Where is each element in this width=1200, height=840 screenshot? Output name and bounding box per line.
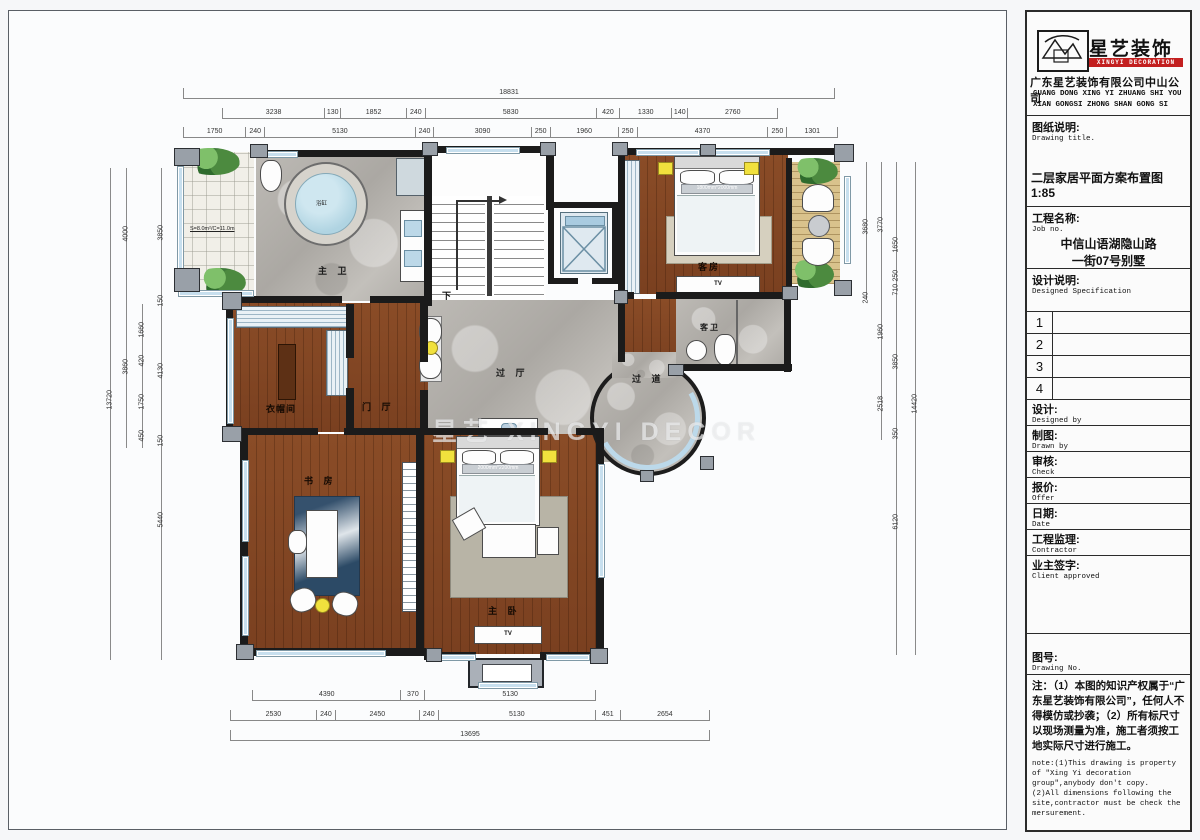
spec-row: 3 (1027, 356, 1190, 378)
wall (784, 292, 791, 372)
dim-value: 1330 (619, 108, 671, 118)
window (242, 556, 249, 636)
tv-cabinet: TV (676, 276, 760, 293)
window (446, 147, 520, 154)
dim-value: 420 (596, 108, 620, 118)
stair-arrow-line (456, 200, 500, 202)
stair-arrow-head (499, 196, 507, 204)
column (834, 144, 854, 162)
dim-value: 140 (671, 108, 687, 118)
spec-row: 4 (1027, 378, 1190, 400)
wall (232, 296, 342, 303)
closet-island (278, 344, 296, 400)
dim-value: 3090 (433, 127, 530, 137)
column (834, 280, 852, 296)
title-block: 星艺装饰 XINGYI DECORATION 广东星艺装饰有限公司中山公司 GU… (1025, 10, 1192, 832)
field-label-en: Client approved (1027, 573, 1190, 581)
dim-value: 240 (316, 710, 335, 720)
spec-rows: 1234 (1027, 312, 1190, 400)
dim-value: 1852 (340, 108, 406, 118)
sink (404, 250, 422, 267)
elevator-car (560, 212, 608, 274)
column (422, 142, 438, 156)
stair-stringer (485, 196, 494, 296)
dim-value: 13695 (230, 730, 710, 740)
field-label-cn: 日期: (1027, 504, 1190, 521)
room-label-guest-room: 客房 (698, 260, 720, 273)
column (174, 268, 200, 292)
spec-label-cn: 设计说明: (1027, 269, 1190, 288)
spec-row-number: 1 (1027, 312, 1053, 333)
job-address-2: 一街07号别墅 (1027, 252, 1190, 269)
dim-value: 3850 (893, 350, 900, 370)
dim-value: 240 (406, 108, 425, 118)
window (256, 650, 386, 657)
dim-value: 1301 (786, 127, 838, 137)
job-address-1: 中信山语湖隐山路 (1027, 235, 1190, 252)
dim-value: 1960 (550, 127, 618, 137)
dim-value: 3680 (863, 215, 870, 235)
dim-value: 2518 (878, 392, 885, 412)
sheet-title: 二层家居平面方案布置图 1:85 (1027, 143, 1190, 200)
window (844, 176, 851, 264)
dim-value: 240 (245, 127, 264, 137)
column (782, 286, 798, 300)
field-label-en: Check (1027, 469, 1190, 477)
dim-chain-bottom-2: 2530240245024051304512654 (230, 710, 710, 721)
wall (424, 428, 548, 435)
dim-value: 1960 (878, 320, 885, 340)
tv-label: TV (677, 277, 759, 291)
dim-value: 710 (893, 276, 900, 296)
field-label-en: Drawn by (1027, 443, 1190, 451)
field-row: 业主签字:Client approved (1027, 556, 1190, 634)
field-label-cn: 审核: (1027, 452, 1190, 469)
drawing-desc-cn: 图纸说明: (1027, 116, 1190, 135)
field-row: 报价:Offer (1027, 478, 1190, 504)
dim-chain-top-2: 32381301852240583042013301402760 (222, 108, 778, 119)
dim-value: 3850 (158, 221, 165, 241)
dim-value: 240 (419, 710, 438, 720)
elevator-x-icon (561, 225, 607, 273)
wall (786, 158, 792, 290)
dim-value: 1660 (139, 318, 146, 338)
logo-band: XINGYI DECORATION (1089, 58, 1183, 67)
balcony-area-label: S=8.0m²/C=11.0m (190, 226, 235, 232)
wall (592, 278, 618, 284)
dim-value: 6120 (893, 510, 900, 530)
dim-chain-bottom-overall: 13695 (230, 730, 710, 741)
plant (792, 158, 838, 184)
window (478, 682, 538, 689)
dim-value: 1750 (183, 127, 245, 137)
stair-down-label: 下 (442, 289, 451, 302)
column (614, 290, 628, 304)
window (636, 149, 700, 156)
column (590, 648, 608, 664)
spec-label-en: Designed Specification (1027, 288, 1190, 296)
column (426, 648, 442, 662)
nightstand-lamp (542, 450, 557, 463)
bathtub-label: 浴缸 (316, 199, 327, 207)
field-row: 设计:Designed by (1027, 400, 1190, 426)
room-label-corridor: 过 道 (632, 372, 665, 385)
floor-plan: 下 浴缸 2000mm*2200mm (0, 0, 1005, 840)
wardrobe (236, 306, 350, 328)
side-table (315, 598, 330, 613)
window (546, 654, 590, 661)
column (700, 456, 714, 470)
balcony-chair (802, 238, 834, 266)
spec-row-number: 4 (1027, 378, 1053, 399)
shower-partition (736, 300, 738, 364)
dim-value: 2654 (620, 710, 710, 720)
column (612, 142, 628, 156)
logo-bird-icon (1039, 32, 1083, 66)
dim-line (126, 168, 127, 448)
dim-line (110, 168, 111, 660)
drawing-desc-en: Drawing title. (1027, 135, 1190, 143)
field-label-cn: 设计: (1027, 400, 1190, 417)
column (540, 142, 556, 156)
dim-value: 3238 (222, 108, 324, 118)
company-logo-icon (1037, 30, 1089, 72)
foyer-floor (352, 303, 428, 434)
notes-section: 注：（1）本图的知识产权属于“广东星艺装饰有限公司”，任何人不得模仿或抄袭；（2… (1027, 675, 1190, 828)
column (700, 144, 716, 156)
drawing-sheet: 下 浴缸 2000mm*2200mm (0, 0, 1200, 840)
desk (306, 510, 338, 578)
dim-value: 240 (415, 127, 434, 137)
wall (656, 292, 792, 299)
column (222, 426, 242, 442)
field-label-cn: 报价: (1027, 478, 1190, 495)
dim-value: 250 (767, 127, 786, 137)
wall (618, 155, 625, 301)
field-row: 审核:Check (1027, 452, 1190, 478)
dim-value: 5830 (425, 108, 596, 118)
wall (346, 304, 354, 358)
dim-value: 350 (893, 420, 900, 440)
tv-cabinet: TV (474, 626, 542, 644)
ottoman (537, 527, 559, 555)
room-label-master-bath: 主 卫 (318, 264, 351, 277)
room-label-hall: 过 厅 (496, 366, 529, 379)
wardrobe (326, 330, 348, 396)
duvet (677, 195, 755, 252)
sofa (482, 524, 536, 558)
wall (416, 434, 424, 656)
dim-value: 2450 (335, 710, 419, 720)
nightstand-lamp (744, 162, 759, 175)
sink (686, 340, 707, 361)
dim-value: 250 (531, 127, 550, 137)
dim-line (161, 168, 162, 660)
dim-value: 130 (324, 108, 340, 118)
field-label-cn: 制图: (1027, 426, 1190, 443)
column (640, 470, 654, 482)
field-row: 日期:Date (1027, 504, 1190, 530)
pillow (462, 450, 496, 465)
wall (548, 278, 578, 284)
room-label-study: 书 房 (304, 474, 337, 487)
field-row: 制图:Drawn by (1027, 426, 1190, 452)
job-label-cn: 工程名称: (1027, 207, 1190, 226)
dim-value: 14420 (912, 394, 919, 414)
pillow (680, 170, 715, 185)
dim-value: 250 (618, 127, 637, 137)
dim-value: 18831 (183, 88, 835, 98)
dim-value: 370 (400, 690, 424, 700)
window (242, 460, 249, 542)
dim-value: 1650 (893, 233, 900, 253)
nightstand-lamp (658, 162, 673, 175)
dim-value: 4390 (252, 690, 400, 700)
bed-size-tag: 2000mm*2200mm (462, 464, 534, 474)
spec-section: 设计说明: Designed Specification (1027, 269, 1190, 312)
company-name-en-2: XIAN GONGSI ZHONG SHAN GONG SI (1028, 101, 1173, 109)
window (598, 464, 605, 578)
shower (396, 158, 426, 196)
dim-value: 2760 (687, 108, 778, 118)
dim-value: 5440 (158, 508, 165, 528)
column (222, 292, 242, 310)
field-label-en: Date (1027, 521, 1190, 529)
drawing-title-section: 图纸说明: Drawing title. 二层家居平面方案布置图 1:85 (1027, 116, 1190, 207)
signature-fields: 设计:Designed by制图:Drawn by审核:Check报价:Offe… (1027, 400, 1190, 634)
dim-value: 150 (158, 427, 165, 447)
wall (548, 202, 554, 284)
desk-chair (288, 530, 307, 554)
dim-value: 5130 (438, 710, 595, 720)
dim-value: 4000 (123, 222, 130, 242)
dim-value: 420 (139, 347, 146, 367)
field-label-cn: 工程监理: (1027, 530, 1190, 547)
dim-value: 4370 (637, 127, 768, 137)
room-label-closet: 衣帽间 (266, 402, 296, 415)
room-label-guest-bath: 客卫 (700, 322, 720, 333)
column (174, 148, 200, 166)
dim-value: 5130 (424, 690, 596, 700)
balcony-table (808, 215, 830, 237)
tv-label: TV (475, 627, 541, 642)
column (250, 144, 268, 158)
field-label-cn: 业主签字: (1027, 556, 1190, 573)
dim-value: 451 (595, 710, 620, 720)
bay-window-inner (482, 664, 532, 682)
dim-value: 2530 (230, 710, 316, 720)
window (227, 318, 234, 424)
company-name-en-1: GUANG DONG XING YI ZHUANG SHI YOU (1028, 90, 1187, 98)
spec-row: 2 (1027, 334, 1190, 356)
dim-value: 5130 (264, 127, 414, 137)
column (668, 364, 684, 376)
job-label-en: Job no. (1027, 226, 1190, 234)
note-en-1: note:(1)This drawing is property of "Xin… (1027, 754, 1190, 789)
drawing-no-en: Drawing No. (1027, 665, 1190, 673)
drawing-no-section: 图号: Drawing No. (1027, 648, 1190, 675)
drawing-no-cn: 图号: (1027, 648, 1190, 665)
dim-value: 13720 (107, 390, 114, 410)
dim-value: 3770 (878, 213, 885, 233)
dim-value: 4130 (158, 359, 165, 379)
balcony-chair (802, 184, 834, 212)
spec-row-number: 2 (1027, 334, 1053, 355)
dim-value: 150 (158, 287, 165, 307)
note-en-2: (2)All dimensions following the site,con… (1027, 789, 1190, 819)
wall (420, 300, 428, 362)
spec-row: 1 (1027, 312, 1190, 334)
dim-value: 450 (139, 422, 146, 442)
nightstand-lamp (440, 450, 455, 463)
dim-value: 1750 (139, 390, 146, 410)
stair-arrow-line (456, 200, 458, 290)
wall (548, 202, 618, 208)
dim-chain-top-3: 175024051302403090250196025043702501301 (183, 127, 838, 138)
pillow (500, 450, 534, 465)
toilet (714, 334, 736, 366)
wall (676, 364, 792, 371)
sink (404, 220, 422, 237)
room-label-foyer: 门 厅 (362, 400, 395, 413)
field-label-en: Offer (1027, 495, 1190, 503)
dim-chain-top-overall: 18831 (183, 88, 835, 99)
logo-wordmark: 星艺装饰 (1089, 34, 1173, 61)
dim-chain-bottom-1: 43903705130 (252, 690, 596, 701)
title-block-header: 星艺装饰 XINGYI DECORATION 广东星艺装饰有限公司中山公司 GU… (1027, 12, 1190, 116)
window (177, 166, 184, 270)
note-cn: 注：（1）本图的知识产权属于“广东星艺装饰有限公司”，任何人不得模仿或抄袭；（2… (1027, 675, 1190, 754)
toilet (260, 160, 282, 192)
bed-size-tag: 1800mm*2000mm (681, 184, 753, 194)
column (236, 644, 254, 660)
dim-value: 3860 (123, 355, 130, 375)
room-label-master-bedroom: 主 卧 (488, 604, 521, 617)
wall (424, 148, 432, 306)
dim-value: 240 (863, 284, 870, 304)
job-section: 工程名称: Job no. 中信山语湖隐山路 一街07号别墅 (1027, 207, 1190, 269)
spec-row-number: 3 (1027, 356, 1053, 377)
field-row: 工程监理:Contractor (1027, 530, 1190, 556)
field-label-en: Designed by (1027, 417, 1190, 425)
field-label-en: Contractor (1027, 547, 1190, 555)
wall (618, 300, 625, 362)
